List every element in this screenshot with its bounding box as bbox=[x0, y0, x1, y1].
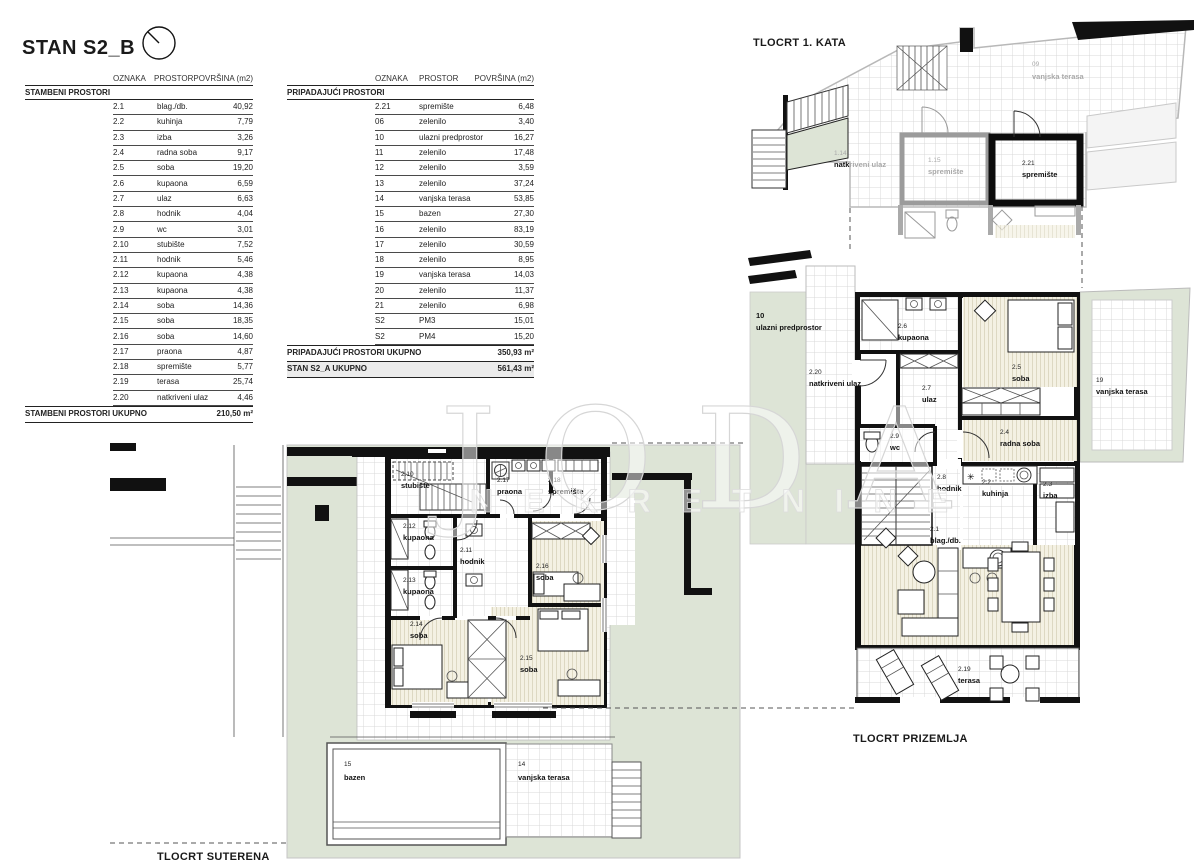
room-label-id: 2.5 bbox=[1012, 364, 1021, 371]
cell-povrsina: 4,38 bbox=[237, 287, 253, 295]
table-row: 13 zelenilo 37,24 bbox=[375, 176, 534, 191]
plan-caption-suterena: TLOCRT SUTERENA bbox=[157, 851, 270, 863]
table-row: 2.12 kupaona 4,38 bbox=[113, 268, 253, 283]
room-label-name: ulazni predprostor bbox=[756, 323, 822, 332]
north-arrow-icon bbox=[136, 20, 182, 66]
room-label-id: 2.14 bbox=[410, 621, 423, 628]
cell-oznaka: 2.18 bbox=[113, 363, 157, 371]
cell-povrsina: 6,48 bbox=[518, 103, 534, 111]
cell-oznaka: 2.20 bbox=[113, 394, 157, 402]
cell-oznaka: 2.9 bbox=[113, 226, 157, 234]
table-row: 17 zelenilo 30,59 bbox=[375, 238, 534, 253]
footer-value: 561,43 m² bbox=[498, 365, 534, 373]
cell-povrsina: 15,01 bbox=[514, 317, 534, 325]
table-row: 2.4 radna soba 9,17 bbox=[113, 146, 253, 161]
cell-oznaka: 2.16 bbox=[113, 333, 157, 341]
cell-povrsina: 30,59 bbox=[514, 241, 534, 249]
room-label-id: 2.3 bbox=[1043, 481, 1052, 488]
cell-prostor: zelenilo bbox=[419, 180, 514, 188]
table-row: 15 bazen 27,30 bbox=[375, 207, 534, 222]
cell-prostor: terasa bbox=[157, 378, 233, 386]
room-label-name: kupaona bbox=[403, 533, 435, 542]
header-prostor: PROSTOR bbox=[154, 75, 193, 83]
table-row: 2.10 stubište 7,52 bbox=[113, 238, 253, 253]
room-label-name: natkriveni ulaz bbox=[834, 160, 886, 169]
room-label-id: 10 bbox=[756, 311, 764, 320]
table-header: OZNAKA PROSTOR POVRŠINA (m2) bbox=[287, 70, 534, 83]
room-label-id: 2.10 bbox=[401, 471, 414, 478]
cell-prostor: spremište bbox=[157, 363, 237, 371]
cell-povrsina: 37,24 bbox=[514, 180, 534, 188]
watermark-subtext: NEKRETNINE bbox=[470, 483, 978, 519]
room-label-id: 2.13 bbox=[403, 577, 416, 584]
cell-povrsina: 14,03 bbox=[514, 271, 534, 279]
room-label-id: 14 bbox=[518, 761, 526, 768]
table-footer-subtotal: PRIPADAJUĆI PROSTORI UKUPNO 350,93 m² bbox=[287, 345, 534, 362]
room-label-id: 1.15 bbox=[928, 157, 941, 164]
cell-povrsina: 15,20 bbox=[514, 333, 534, 341]
cell-povrsina: 4,87 bbox=[237, 348, 253, 356]
cell-povrsina: 9,17 bbox=[237, 149, 253, 157]
header-povrs: POVRŠINA (m2) bbox=[474, 75, 534, 83]
room-label-name: stubište bbox=[401, 481, 430, 490]
cell-oznaka: 2.13 bbox=[113, 287, 157, 295]
table-stambeni-prostori: OZNAKA PROSTOR POVRŠINA (m2) STAMBENI PR… bbox=[25, 70, 253, 423]
cell-povrsina: 18,35 bbox=[233, 317, 253, 325]
cell-povrsina: 5,77 bbox=[237, 363, 253, 371]
cell-povrsina: 7,52 bbox=[237, 241, 253, 249]
cell-povrsina: 8,95 bbox=[518, 256, 534, 264]
table-row: 2.11 hodnik 5,46 bbox=[113, 253, 253, 268]
cell-povrsina: 16,27 bbox=[514, 134, 534, 142]
table-row: 2.3 izba 3,26 bbox=[113, 131, 253, 146]
room-label-name: spremište bbox=[928, 167, 963, 176]
room-label-id: 2.4 bbox=[1000, 429, 1009, 436]
room-label-name: radna soba bbox=[1000, 439, 1041, 448]
footer-label: PRIPADAJUĆI PROSTORI UKUPNO bbox=[287, 349, 498, 357]
table-row: 2.1 blag./db. 40,92 bbox=[113, 100, 253, 115]
table-row: 2.8 hodnik 4,04 bbox=[113, 207, 253, 222]
table-row: 06 zelenilo 3,40 bbox=[375, 115, 534, 130]
table-row: 2.6 kupaona 6,59 bbox=[113, 176, 253, 191]
cell-povrsina: 25,74 bbox=[233, 378, 253, 386]
cell-prostor: soba bbox=[157, 333, 233, 341]
roof-mark bbox=[748, 270, 797, 284]
cell-povrsina: 4,38 bbox=[237, 271, 253, 279]
cell-povrsina: 17,48 bbox=[514, 149, 534, 157]
cell-oznaka: 2.12 bbox=[113, 271, 157, 279]
cell-oznaka: 14 bbox=[375, 195, 419, 203]
cell-prostor: kuhinja bbox=[157, 118, 237, 126]
section-title: PRIPADAJUĆI PROSTORI bbox=[287, 85, 534, 100]
table-row: 11 zelenilo 17,48 bbox=[375, 146, 534, 161]
table-row: 2.14 soba 14,36 bbox=[113, 299, 253, 314]
cell-povrsina: 14,60 bbox=[233, 333, 253, 341]
header-oznaka: OZNAKA bbox=[113, 75, 154, 83]
table-header: OZNAKA PROSTOR POVRŠINA (m2) bbox=[25, 70, 253, 83]
cell-oznaka: S2 bbox=[375, 317, 419, 325]
room-label-id: 2.19 bbox=[958, 666, 971, 673]
cell-oznaka: 2.6 bbox=[113, 180, 157, 188]
table-row: 20 zelenilo 11,37 bbox=[375, 284, 534, 299]
cell-povrsina: 27,30 bbox=[514, 210, 534, 218]
room-label-name: vanjska terasa bbox=[1096, 387, 1149, 396]
table-row: 2.17 praona 4,87 bbox=[113, 345, 253, 360]
cell-povrsina: 6,63 bbox=[237, 195, 253, 203]
room-label-id: 2.21 bbox=[1022, 160, 1035, 167]
cell-oznaka: 2.3 bbox=[113, 134, 157, 142]
table-row: 2.20 natkriveni ulaz 4,46 bbox=[113, 391, 253, 406]
room-label-name: vanjska terasa bbox=[518, 773, 571, 782]
cell-prostor: ulazni predprostor bbox=[419, 134, 514, 142]
table-row: 10 ulazni predprostor 16,27 bbox=[375, 131, 534, 146]
area-terrace-19 bbox=[1080, 288, 1190, 462]
cell-oznaka: 20 bbox=[375, 287, 419, 295]
room-label-id: 19 bbox=[1096, 377, 1104, 384]
cell-povrsina: 6,98 bbox=[518, 302, 534, 310]
cell-prostor: blag./db. bbox=[157, 103, 233, 111]
pool bbox=[327, 743, 506, 845]
wall-top-left-2 bbox=[287, 477, 360, 486]
cell-prostor: hodnik bbox=[157, 256, 237, 264]
cell-oznaka: S2 bbox=[375, 333, 419, 341]
header-prostor: PROSTOR bbox=[419, 75, 474, 83]
cell-oznaka: 2.5 bbox=[113, 164, 157, 172]
cell-povrsina: 40,92 bbox=[233, 103, 253, 111]
room-label-id: 2.20 bbox=[809, 369, 822, 376]
cell-oznaka: 2.2 bbox=[113, 118, 157, 126]
room-label-name: izba bbox=[1043, 491, 1058, 500]
cell-povrsina: 3,26 bbox=[237, 134, 253, 142]
header-povrs: POVRŠINA (m2) bbox=[193, 75, 253, 83]
cell-prostor: zelenilo bbox=[419, 256, 518, 264]
page-title: STAN S2_B bbox=[22, 37, 135, 60]
area-lower-terrace bbox=[506, 744, 612, 837]
neighbor-roof-2 bbox=[1087, 142, 1176, 190]
header-oznaka: OZNAKA bbox=[375, 75, 419, 83]
cell-prostor: izba bbox=[157, 134, 237, 142]
watermark: JODA NEKRETNINE bbox=[428, 379, 992, 542]
cell-prostor: bazen bbox=[419, 210, 514, 218]
table-row: 2.2 kuhinja 7,79 bbox=[113, 115, 253, 130]
footer-value: 210,50 m² bbox=[217, 410, 253, 418]
room-label-id: 2.11 bbox=[460, 547, 473, 554]
cell-oznaka: 11 bbox=[375, 149, 419, 157]
section-title: STAMBENI PROSTORI bbox=[25, 85, 253, 100]
footer-label: STAMBENI PROSTORI UKUPNO bbox=[25, 410, 217, 418]
stairs-garden bbox=[612, 762, 641, 838]
cell-prostor: zelenilo bbox=[419, 226, 514, 234]
table-row: 2.13 kupaona 4,38 bbox=[113, 284, 253, 299]
table-row: 2.19 terasa 25,74 bbox=[113, 375, 253, 390]
cell-prostor: kupaona bbox=[157, 180, 237, 188]
cell-oznaka: 2.15 bbox=[113, 317, 157, 325]
room-label-name: spremište bbox=[1022, 170, 1057, 179]
cell-prostor: zelenilo bbox=[419, 164, 518, 172]
cell-povrsina: 4,46 bbox=[237, 394, 253, 402]
cell-prostor: PM3 bbox=[419, 317, 514, 325]
cell-oznaka: 19 bbox=[375, 271, 419, 279]
cell-oznaka: 15 bbox=[375, 210, 419, 218]
cell-prostor: vanjska terasa bbox=[419, 271, 514, 279]
table-row: 2.18 spremište 5,77 bbox=[113, 360, 253, 375]
cell-prostor: PM4 bbox=[419, 333, 514, 341]
cell-povrsina: 19,20 bbox=[233, 164, 253, 172]
cell-prostor: zelenilo bbox=[419, 149, 514, 157]
cell-oznaka: 2.21 bbox=[375, 103, 419, 111]
stairs-top bbox=[897, 46, 947, 90]
cell-povrsina: 83,19 bbox=[514, 226, 534, 234]
furniture-closet bbox=[468, 620, 506, 698]
table-row: 19 vanjska terasa 14,03 bbox=[375, 268, 534, 283]
room-label-name: bazen bbox=[344, 773, 366, 782]
cell-povrsina: 3,59 bbox=[518, 164, 534, 172]
cell-oznaka: 2.17 bbox=[113, 348, 157, 356]
table-row: 2.16 soba 14,60 bbox=[113, 329, 253, 344]
roof-mark bbox=[748, 250, 812, 266]
cell-oznaka: 10 bbox=[375, 134, 419, 142]
table-footer: STAMBENI PROSTORI UKUPNO 210,50 m² bbox=[25, 406, 253, 423]
footer-value: 350,93 m² bbox=[498, 349, 534, 357]
table-footer-total: STAN S2_A UKUPNO 561,43 m² bbox=[287, 362, 534, 378]
cell-povrsina: 7,79 bbox=[237, 118, 253, 126]
cell-prostor: stubište bbox=[157, 241, 237, 249]
room-label-id: 2.16 bbox=[536, 563, 549, 570]
cell-prostor: zelenilo bbox=[419, 302, 518, 310]
cell-prostor: vanjska terasa bbox=[419, 195, 514, 203]
cell-povrsina: 4,04 bbox=[237, 210, 253, 218]
cell-prostor: natkriveni ulaz bbox=[157, 394, 237, 402]
table-row: 16 zelenilo 83,19 bbox=[375, 222, 534, 237]
room-label-name: kupaona bbox=[898, 333, 930, 342]
table-row: 21 zelenilo 6,98 bbox=[375, 299, 534, 314]
cell-oznaka: 18 bbox=[375, 256, 419, 264]
cell-oznaka: 16 bbox=[375, 226, 419, 234]
cell-prostor: kupaona bbox=[157, 287, 237, 295]
fixtures-below bbox=[898, 205, 1081, 238]
table-rows: 2.1 blag./db. 40,92 2.2 kuhinja 7,79 2.3… bbox=[25, 100, 253, 406]
cell-povrsina: 53,85 bbox=[514, 195, 534, 203]
cell-oznaka: 2.19 bbox=[113, 378, 157, 386]
cell-prostor: hodnik bbox=[157, 210, 237, 218]
room-label-id: 09 bbox=[1032, 61, 1040, 68]
table-row: 2.9 wc 3,01 bbox=[113, 222, 253, 237]
cell-prostor: kupaona bbox=[157, 271, 237, 279]
cell-oznaka: 2.10 bbox=[113, 241, 157, 249]
wall-stub bbox=[960, 28, 973, 52]
cell-prostor: radna soba bbox=[157, 149, 237, 157]
plan-caption-prizemlje: TLOCRT PRIZEMLJA bbox=[853, 733, 968, 745]
cell-oznaka: 2.11 bbox=[113, 256, 157, 264]
room-label-name: soba bbox=[1012, 374, 1030, 383]
room-label-name: vanjska terasa bbox=[1032, 72, 1085, 81]
room-label-name: soba bbox=[520, 665, 538, 674]
cell-prostor: soba bbox=[157, 302, 233, 310]
cell-prostor: spremište bbox=[419, 103, 518, 111]
room-label-name: soba bbox=[536, 573, 554, 582]
cell-prostor: praona bbox=[157, 348, 237, 356]
wall-top-left bbox=[287, 447, 360, 456]
cell-prostor: zelenilo bbox=[419, 118, 518, 126]
plan-caption-kata: TLOCRT 1. KATA bbox=[753, 37, 846, 49]
cell-oznaka: 12 bbox=[375, 164, 419, 172]
cell-prostor: soba bbox=[157, 317, 233, 325]
footer-label: STAN S2_A UKUPNO bbox=[287, 365, 498, 373]
room-label-id: 1.14 bbox=[834, 150, 847, 157]
cell-prostor: wc bbox=[157, 226, 237, 234]
cell-oznaka: 17 bbox=[375, 241, 419, 249]
cell-oznaka: 13 bbox=[375, 180, 419, 188]
table-pripadajuci-prostori: OZNAKA PROSTOR POVRŠINA (m2) PRIPADAJUĆI… bbox=[287, 70, 534, 378]
cell-oznaka: 2.14 bbox=[113, 302, 157, 310]
cell-povrsina: 6,59 bbox=[237, 180, 253, 188]
cell-povrsina: 5,46 bbox=[237, 256, 253, 264]
room-label-id: 2.12 bbox=[403, 523, 416, 530]
cell-prostor: soba bbox=[157, 164, 233, 172]
cell-povrsina: 3,01 bbox=[237, 226, 253, 234]
cell-prostor: ulaz bbox=[157, 195, 237, 203]
cell-povrsina: 3,40 bbox=[518, 118, 534, 126]
cell-oznaka: 21 bbox=[375, 302, 419, 310]
cell-prostor: zelenilo bbox=[419, 241, 514, 249]
table-row: 12 zelenilo 3,59 bbox=[375, 161, 534, 176]
table-row: S2 PM4 15,20 bbox=[375, 329, 534, 344]
plan-first-floor: TLOCRT 1. KATA 1.14 natkriveni ulaz 1.15 bbox=[752, 20, 1194, 288]
cell-oznaka: 2.1 bbox=[113, 103, 157, 111]
table-row: 2.5 soba 19,20 bbox=[113, 161, 253, 176]
room-label-id: 2.15 bbox=[520, 655, 533, 662]
table-row: 2.21 spremište 6,48 bbox=[375, 100, 534, 115]
room-label-name: kupaona bbox=[403, 587, 435, 596]
cell-oznaka: 2.7 bbox=[113, 195, 157, 203]
room-label-name: soba bbox=[410, 631, 428, 640]
table-row: 18 zelenilo 8,95 bbox=[375, 253, 534, 268]
table-row: 14 vanjska terasa 53,85 bbox=[375, 192, 534, 207]
cell-oznaka: 06 bbox=[375, 118, 419, 126]
cell-prostor: zelenilo bbox=[419, 287, 515, 295]
cell-povrsina: 14,36 bbox=[233, 302, 253, 310]
table-row: S2 PM3 15,01 bbox=[375, 314, 534, 329]
room-label-id: 15 bbox=[344, 761, 352, 768]
room-label-id: 2.6 bbox=[898, 323, 907, 330]
room-label-name: hodnik bbox=[460, 557, 485, 566]
cell-oznaka: 2.4 bbox=[113, 149, 157, 157]
cell-povrsina: 11,37 bbox=[515, 287, 534, 295]
table-row: 2.15 soba 18,35 bbox=[113, 314, 253, 329]
table-rows: 2.21 spremište 6,48 06 zelenilo 3,40 10 … bbox=[287, 100, 534, 345]
cell-oznaka: 2.8 bbox=[113, 210, 157, 218]
table-row: 2.7 ulaz 6,63 bbox=[113, 192, 253, 207]
room-label-name: terasa bbox=[958, 676, 981, 685]
